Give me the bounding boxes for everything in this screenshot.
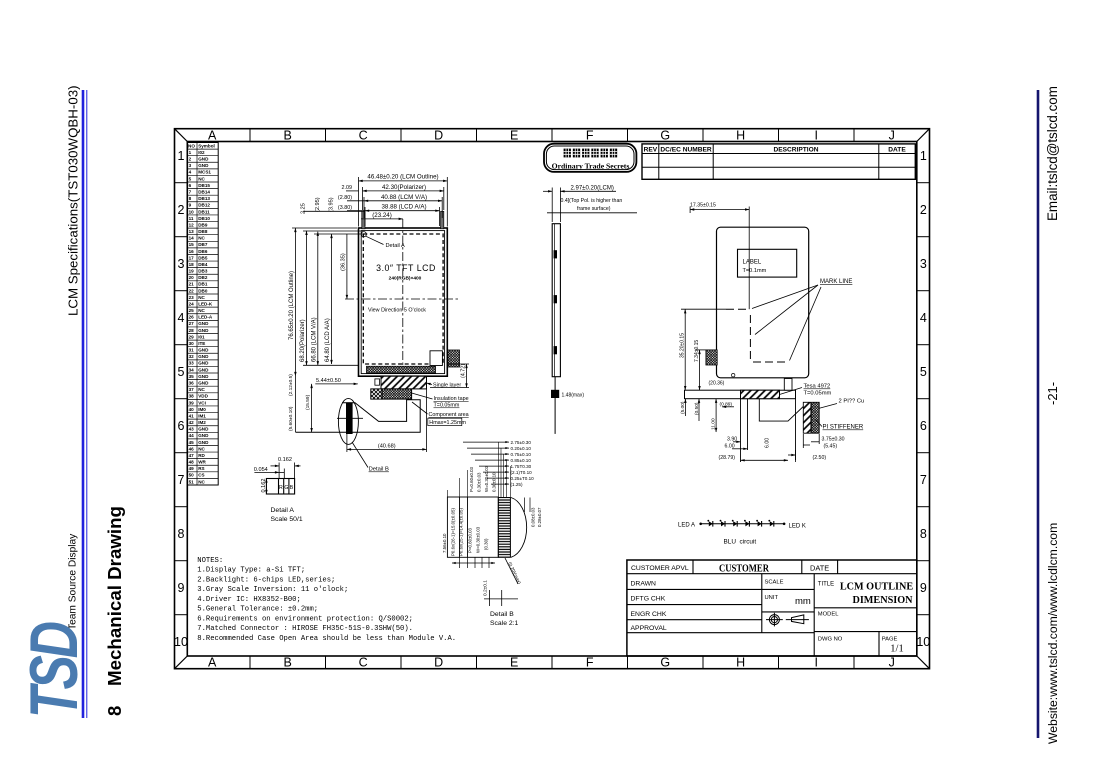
svg-text:DB0: DB0: [198, 288, 208, 293]
svg-text:F: F: [586, 128, 594, 142]
svg-text:J: J: [889, 656, 895, 670]
svg-text:LABEL: LABEL: [743, 260, 762, 266]
svg-text:A: A: [208, 656, 217, 670]
svg-text:REV: REV: [644, 146, 658, 153]
svg-text:33: 33: [189, 361, 195, 366]
svg-text:GND: GND: [198, 321, 209, 326]
svg-text:B: B: [284, 128, 292, 142]
svg-text:1: 1: [189, 150, 192, 155]
svg-text:7.56±0.10: 7.56±0.10: [442, 533, 447, 553]
svg-text:IM2: IM2: [198, 420, 206, 425]
svg-text:(23.24): (23.24): [372, 212, 392, 219]
svg-text:Detail A: Detail A: [271, 507, 295, 514]
svg-text:DB11: DB11: [198, 209, 210, 214]
svg-text:15: 15: [189, 242, 195, 247]
svg-text:LED-A: LED-A: [198, 315, 213, 320]
svg-text:6.Requirements on environment: 6.Requirements on environment protection…: [197, 615, 413, 623]
svg-text:DATE: DATE: [888, 146, 906, 153]
svg-text:3.0″ TFT LCD: 3.0″ TFT LCD: [376, 263, 436, 273]
svg-text:3.Gray Scale Inversion: 11 o'c: 3.Gray Scale Inversion: 11 o'clock;: [197, 586, 348, 594]
svg-text:G: G: [284, 485, 288, 491]
svg-text:J: J: [889, 128, 895, 142]
svg-text:B: B: [290, 485, 294, 491]
svg-text:DESCRIPTION: DESCRIPTION: [773, 146, 818, 153]
svg-text:2.97±0.20(LCM): 2.97±0.20(LCM): [571, 185, 614, 191]
svg-text:-21-: -21-: [1045, 382, 1060, 405]
svg-text:Detail A: Detail A: [386, 243, 406, 249]
svg-text:27: 27: [189, 321, 195, 326]
svg-text:0.30±0.03: 0.30±0.03: [477, 472, 482, 492]
svg-text:GND: GND: [198, 157, 209, 162]
svg-text:T=0.1mm: T=0.1mm: [743, 268, 767, 274]
svg-text:0.4](Top Pol. is higher than: 0.4](Top Pol. is higher than: [561, 198, 623, 204]
svg-text:36: 36: [189, 381, 195, 386]
svg-text:2.75±0.30: 2.75±0.30: [511, 440, 532, 445]
svg-text:VDD: VDD: [198, 394, 208, 399]
svg-text:GND: GND: [198, 427, 209, 432]
svg-text:35.20±0.15: 35.20±0.15: [680, 333, 686, 358]
svg-text:T=0.05mm: T=0.05mm: [434, 403, 460, 409]
svg-text:(5.45): (5.45): [824, 443, 838, 449]
svg-text:0.75±0.10: 0.75±0.10: [511, 452, 532, 457]
svg-text:I02: I02: [198, 150, 205, 155]
svg-text:P0.6x(26-1)=15.0(±0.05): P0.6x(26-1)=15.0(±0.05): [451, 508, 456, 556]
svg-text:19: 19: [189, 269, 195, 274]
svg-text:8: 8: [178, 527, 185, 541]
svg-text:240(RGB)×400: 240(RGB)×400: [389, 276, 422, 282]
svg-text:D: D: [434, 656, 443, 670]
svg-text:47: 47: [189, 453, 195, 458]
svg-text:P0.6x(25-1)=14.4(±0.05): P0.6x(25-1)=14.4(±0.05): [459, 508, 464, 556]
svg-text:Hmax=1.25mm: Hmax=1.25mm: [429, 420, 466, 426]
svg-text:P=0.60±0.03: P=0.60±0.03: [469, 466, 474, 492]
svg-text:UNIT: UNIT: [765, 595, 779, 601]
svg-text:(2.1)T0.10: (2.1)T0.10: [511, 470, 533, 475]
svg-text:0.162: 0.162: [278, 457, 292, 463]
svg-text:(3.80): (3.80): [338, 205, 352, 211]
svg-text:Team Source Display: Team Source Display: [68, 533, 79, 630]
svg-text:APPROVAL: APPROVAL: [631, 625, 667, 632]
svg-text:A: A: [208, 128, 217, 142]
svg-text:DB13: DB13: [198, 196, 210, 201]
svg-text:(0.30): (0.30): [484, 538, 489, 550]
svg-text:14: 14: [189, 236, 195, 241]
svg-text:T=0.05mm: T=0.05mm: [804, 391, 832, 397]
svg-text:NC: NC: [198, 295, 205, 300]
svg-text:GND: GND: [198, 328, 209, 333]
svg-text:3: 3: [920, 257, 927, 271]
svg-text:8: 8: [920, 527, 927, 541]
svg-text:(3.95): (3.95): [329, 197, 335, 212]
svg-text:(28.79): (28.79): [719, 455, 736, 461]
svg-text:Insulation tape: Insulation tape: [434, 396, 469, 402]
svg-text:39: 39: [189, 400, 195, 405]
svg-text:76.65±0.20 (LCM Outline): 76.65±0.20 (LCM Outline): [289, 271, 295, 340]
svg-text:(2.50): (2.50): [813, 455, 827, 461]
svg-text:1.Display Type: a-Si TFT;: 1.Display Type: a-Si TFT;: [197, 567, 305, 575]
svg-text:3: 3: [189, 163, 192, 168]
svg-text:1: 1: [178, 149, 185, 163]
svg-text:Symbol: Symbol: [198, 143, 215, 148]
svg-text:I01: I01: [198, 334, 205, 339]
svg-text:4: 4: [189, 170, 192, 175]
svg-text:29: 29: [189, 334, 195, 339]
svg-text:D: D: [434, 128, 443, 142]
svg-text:LED A: LED A: [678, 522, 695, 528]
svg-text:GND: GND: [198, 163, 209, 168]
svg-text:49: 49: [189, 466, 195, 471]
svg-text:MODEL: MODEL: [818, 612, 839, 618]
svg-text:6: 6: [189, 183, 192, 188]
svg-text:(20.36): (20.36): [709, 380, 725, 386]
svg-text:P=0.60±0.03: P=0.60±0.03: [468, 527, 473, 553]
svg-text:22: 22: [189, 288, 195, 293]
svg-text:Website:www.tslcd.com/www.lcdl: Website:www.tslcd.com/www.lcdlcm.com: [1046, 523, 1060, 744]
svg-text:Component area: Component area: [429, 412, 469, 418]
svg-text:NC: NC: [198, 446, 205, 451]
svg-text:7: 7: [920, 473, 927, 487]
svg-text:0.28±0.07: 0.28±0.07: [537, 507, 542, 527]
svg-text:IM0: IM0: [198, 407, 206, 412]
svg-text:GND: GND: [198, 354, 209, 359]
svg-text:DB9: DB9: [198, 222, 208, 227]
svg-text:9: 9: [189, 203, 192, 208]
svg-text:DB4: DB4: [198, 262, 208, 267]
svg-text:GND: GND: [198, 367, 209, 372]
svg-text:40.88 (LCM V/A): 40.88 (LCM V/A): [381, 194, 427, 201]
svg-text:6: 6: [920, 419, 927, 433]
svg-text:C: C: [359, 128, 368, 142]
svg-text:CUSTOMER APVL: CUSTOMER APVL: [631, 565, 689, 572]
svg-text:PI STIFFENER: PI STIFFENER: [823, 425, 864, 431]
svg-text:F: F: [586, 656, 594, 670]
svg-text:DATE: DATE: [810, 564, 829, 573]
svg-text:4.Driver IC: HX8352-B00;: 4.Driver IC: HX8352-B00;: [197, 596, 301, 604]
svg-text:23: 23: [189, 295, 195, 300]
svg-text:Ordinary Trade Secrets: Ordinary Trade Secrets: [552, 161, 630, 170]
svg-text:0.08±0.03: 0.08±0.03: [531, 507, 536, 527]
svg-text:TITLE: TITLE: [818, 581, 834, 587]
svg-text:Scale 50/1: Scale 50/1: [271, 516, 303, 523]
svg-text:64.80 (LCD A/A): 64.80 (LCD A/A): [325, 318, 331, 362]
svg-text:7.34±0.15: 7.34±0.15: [694, 340, 700, 362]
svg-text:LED-K: LED-K: [198, 301, 213, 306]
svg-text:0.162: 0.162: [261, 479, 267, 493]
svg-text:(2.95): (2.95): [315, 197, 321, 212]
svg-text:I: I: [814, 128, 817, 142]
svg-text:IM1: IM1: [198, 413, 206, 418]
svg-text:25: 25: [189, 308, 195, 313]
svg-text:45: 45: [189, 440, 195, 445]
svg-text:9: 9: [920, 581, 927, 595]
svg-text:(1.25): (1.25): [511, 482, 523, 487]
svg-text:2: 2: [920, 203, 927, 217]
svg-text:LED K: LED K: [789, 523, 806, 529]
svg-text:38.88 (LCD A/A): 38.88 (LCD A/A): [381, 204, 426, 211]
svg-text:NO: NO: [188, 143, 195, 148]
svg-text:(15.59): (15.59): [305, 394, 311, 410]
svg-text:(0.89): (0.89): [720, 401, 733, 407]
svg-text:10: 10: [174, 635, 188, 649]
svg-text:6.00: 6.00: [765, 438, 771, 448]
svg-text:Detail B: Detail B: [369, 467, 389, 473]
svg-text:26: 26: [189, 315, 195, 320]
svg-text:11: 11: [189, 216, 194, 221]
svg-text:37: 37: [189, 387, 195, 392]
svg-text:G: G: [660, 128, 670, 142]
svg-text:PAGE: PAGE: [882, 637, 898, 643]
svg-text:View Direction 5 O’clock: View Direction 5 O’clock: [368, 308, 426, 314]
svg-text:DB6: DB6: [198, 249, 208, 254]
svg-text:(0.50): (0.50): [694, 402, 700, 415]
svg-text:NC: NC: [198, 479, 205, 484]
svg-text:E: E: [510, 128, 518, 142]
svg-text:WR: WR: [198, 460, 206, 465]
svg-text:NC: NC: [198, 387, 205, 392]
svg-text:MARK LINE: MARK LINE: [820, 279, 852, 285]
svg-text:46: 46: [189, 446, 195, 451]
svg-text:5.General Tolerance: ±0.2mm;: 5.General Tolerance: ±0.2mm;: [197, 606, 318, 614]
svg-text:(5.60±0.10): (5.60±0.10): [288, 406, 294, 431]
svg-text:(2.80): (2.80): [338, 195, 352, 201]
svg-text:11.00: 11.00: [711, 418, 717, 430]
svg-text:3: 3: [178, 257, 185, 271]
svg-text:1: 1: [920, 149, 927, 163]
svg-text:frame surface): frame surface): [577, 206, 611, 212]
svg-text:1.48(max): 1.48(max): [562, 393, 585, 399]
svg-text:12: 12: [189, 222, 195, 227]
svg-text:DB5: DB5: [198, 255, 208, 260]
svg-text:DFTG CHK: DFTG CHK: [631, 596, 666, 603]
svg-text:NOTES:: NOTES:: [197, 557, 223, 565]
svg-text:SCALE: SCALE: [765, 580, 784, 586]
svg-text:ENGR CHK: ENGR CHK: [631, 611, 667, 618]
svg-text:46.48±0.20 (LCM Outline): 46.48±0.20 (LCM Outline): [367, 174, 438, 181]
svg-text:43: 43: [189, 427, 195, 432]
svg-text:RD: RD: [198, 453, 205, 458]
svg-text:28: 28: [189, 328, 195, 333]
svg-text:NC: NC: [198, 236, 205, 241]
svg-text:2 PI?? Cu: 2 PI?? Cu: [839, 399, 865, 405]
svg-text:GND: GND: [198, 381, 209, 386]
svg-text:0.054: 0.054: [254, 467, 268, 473]
svg-text:8.Recommended Case Open Area s: 8.Recommended Case Open Area should be l…: [197, 635, 456, 643]
svg-text:5: 5: [920, 365, 927, 379]
svg-text:DIMENSION: DIMENSION: [852, 595, 913, 606]
svg-text:CS: CS: [198, 473, 204, 478]
svg-text:66.80 (LCM V/A): 66.80 (LCM V/A): [312, 317, 318, 362]
svg-text:5: 5: [178, 365, 185, 379]
svg-text:13: 13: [189, 229, 195, 234]
svg-text:32: 32: [189, 354, 195, 359]
svg-text:7: 7: [189, 189, 192, 194]
svg-text:8: 8: [104, 706, 125, 716]
svg-text:G: G: [660, 656, 670, 670]
svg-text:(40.68): (40.68): [378, 443, 396, 449]
svg-text:7: 7: [178, 473, 185, 487]
svg-text:CUSTOMER: CUSTOMER: [719, 563, 770, 575]
svg-text:5.44±0.50: 5.44±0.50: [316, 378, 341, 384]
svg-text:48: 48: [189, 460, 195, 465]
svg-text:40: 40: [189, 407, 195, 412]
svg-text:DB14: DB14: [198, 189, 210, 194]
svg-text:NC: NC: [198, 308, 205, 313]
svg-text:68.20(Polarizer): 68.20(Polarizer): [300, 319, 306, 362]
svg-text:(36.35): (36.35): [341, 253, 347, 271]
svg-text:DB3: DB3: [198, 269, 208, 274]
svg-text:44: 44: [189, 433, 195, 438]
svg-text:2.09: 2.09: [342, 185, 353, 191]
svg-text:24: 24: [189, 301, 195, 306]
svg-text:B: B: [284, 656, 292, 670]
svg-text:20: 20: [189, 275, 195, 280]
svg-text:LCM OUTLINE: LCM OUTLINE: [840, 582, 914, 593]
svg-text:C: C: [359, 656, 368, 670]
svg-text:E: E: [510, 656, 518, 670]
svg-text:34: 34: [189, 367, 195, 372]
svg-text:DB10: DB10: [198, 216, 210, 221]
svg-text:10: 10: [916, 635, 930, 649]
svg-text:1.75T0.30: 1.75T0.30: [511, 464, 532, 469]
svg-text:6: 6: [178, 419, 185, 433]
svg-text:0.30±0.10: 0.30±0.10: [492, 472, 497, 492]
svg-text:H: H: [736, 128, 745, 142]
svg-text:42.30(Polarizer): 42.30(Polarizer): [382, 184, 426, 191]
svg-text:DWG NO: DWG NO: [818, 637, 843, 643]
svg-text:30: 30: [189, 341, 195, 346]
svg-text:3.75±0.30: 3.75±0.30: [822, 436, 845, 442]
svg-text:ITE: ITE: [198, 341, 205, 346]
svg-text:Mechanical Drawing: Mechanical Drawing: [104, 506, 125, 686]
svg-text:4: 4: [178, 311, 185, 325]
svg-text:0.2±0.1: 0.2±0.1: [483, 580, 489, 596]
svg-text:50: 50: [189, 473, 195, 478]
svg-text:0.25±T0.10: 0.25±T0.10: [511, 476, 535, 481]
svg-text:W=0.30±0.03: W=0.30±0.03: [484, 465, 489, 492]
svg-text:W=0.30±0.03: W=0.30±0.03: [476, 526, 481, 553]
svg-text:17: 17: [189, 255, 195, 260]
svg-text:TSD: TSD: [16, 622, 92, 718]
svg-text:2.Backlight: 6-chips LED,serie: 2.Backlight: 6-chips LED,series;: [197, 576, 335, 584]
svg-text:DB7: DB7: [198, 242, 208, 247]
svg-text:MCS1: MCS1: [198, 170, 211, 175]
svg-text:0.85±0.10: 0.85±0.10: [511, 458, 532, 463]
svg-text:DRAWN: DRAWN: [631, 580, 657, 587]
svg-text:GND: GND: [198, 374, 209, 379]
svg-text:Scale 2:1: Scale 2:1: [490, 620, 519, 627]
svg-text:GND: GND: [198, 440, 209, 445]
svg-text:H: H: [736, 656, 745, 670]
svg-text:5: 5: [189, 176, 192, 181]
svg-text:R: R: [279, 485, 283, 491]
svg-text:mm: mm: [795, 596, 811, 607]
svg-text:0.20±0.10: 0.20±0.10: [511, 446, 532, 451]
svg-text:NC: NC: [198, 176, 205, 181]
svg-text:BLU circuit: BLU circuit: [724, 539, 757, 546]
svg-text:VCI: VCI: [198, 400, 206, 405]
svg-text:38: 38: [189, 394, 195, 399]
svg-text:DB1: DB1: [198, 282, 208, 287]
svg-text:DB12: DB12: [198, 203, 210, 208]
svg-text:8: 8: [189, 196, 192, 201]
svg-text:2: 2: [178, 203, 185, 217]
svg-text:41: 41: [189, 413, 195, 418]
svg-text:1/1: 1/1: [890, 644, 903, 655]
svg-text:7.Matched Connector : HIROSE F: 7.Matched Connector : HIROSE FH35C-51S-0…: [197, 625, 413, 633]
svg-text:GND: GND: [198, 361, 209, 366]
svg-text:DB2: DB2: [198, 275, 208, 280]
svg-text:9: 9: [178, 581, 185, 595]
svg-text:Email:tslcd@tslcd.com: Email:tslcd@tslcd.com: [1045, 86, 1060, 221]
svg-text:(4.72): (4.72): [460, 364, 466, 378]
svg-text:2.25: 2.25: [301, 203, 307, 214]
svg-text:I: I: [814, 656, 817, 670]
svg-text:LCM Specifications(TST030WQBH-: LCM Specifications(TST030WQBH-03): [66, 85, 81, 316]
svg-text:21: 21: [189, 282, 195, 287]
svg-text:16: 16: [189, 249, 195, 254]
svg-text:17.35±0.15: 17.35±0.15: [690, 202, 716, 208]
svg-text:35: 35: [189, 374, 195, 379]
svg-text:(5.00): (5.00): [680, 401, 686, 414]
svg-text:DC/EC NUMBER: DC/EC NUMBER: [660, 146, 712, 153]
svg-text:2: 2: [189, 157, 192, 162]
svg-text:Detail B: Detail B: [490, 611, 514, 618]
svg-text:DB8: DB8: [198, 229, 208, 234]
svg-text:51: 51: [189, 479, 195, 484]
svg-text:Tesa 4972: Tesa 4972: [804, 384, 831, 390]
svg-text:10: 10: [189, 209, 195, 214]
svg-text:4: 4: [920, 311, 927, 325]
svg-text:31: 31: [189, 348, 195, 353]
svg-text:18: 18: [189, 262, 195, 267]
svg-text:(2.12±0.5): (2.12±0.5): [288, 374, 294, 396]
svg-text:GND: GND: [198, 433, 209, 438]
svg-text:42: 42: [189, 420, 195, 425]
svg-text:DB15: DB15: [198, 183, 210, 188]
svg-text:RS: RS: [198, 466, 204, 471]
svg-text:GND: GND: [198, 348, 209, 353]
